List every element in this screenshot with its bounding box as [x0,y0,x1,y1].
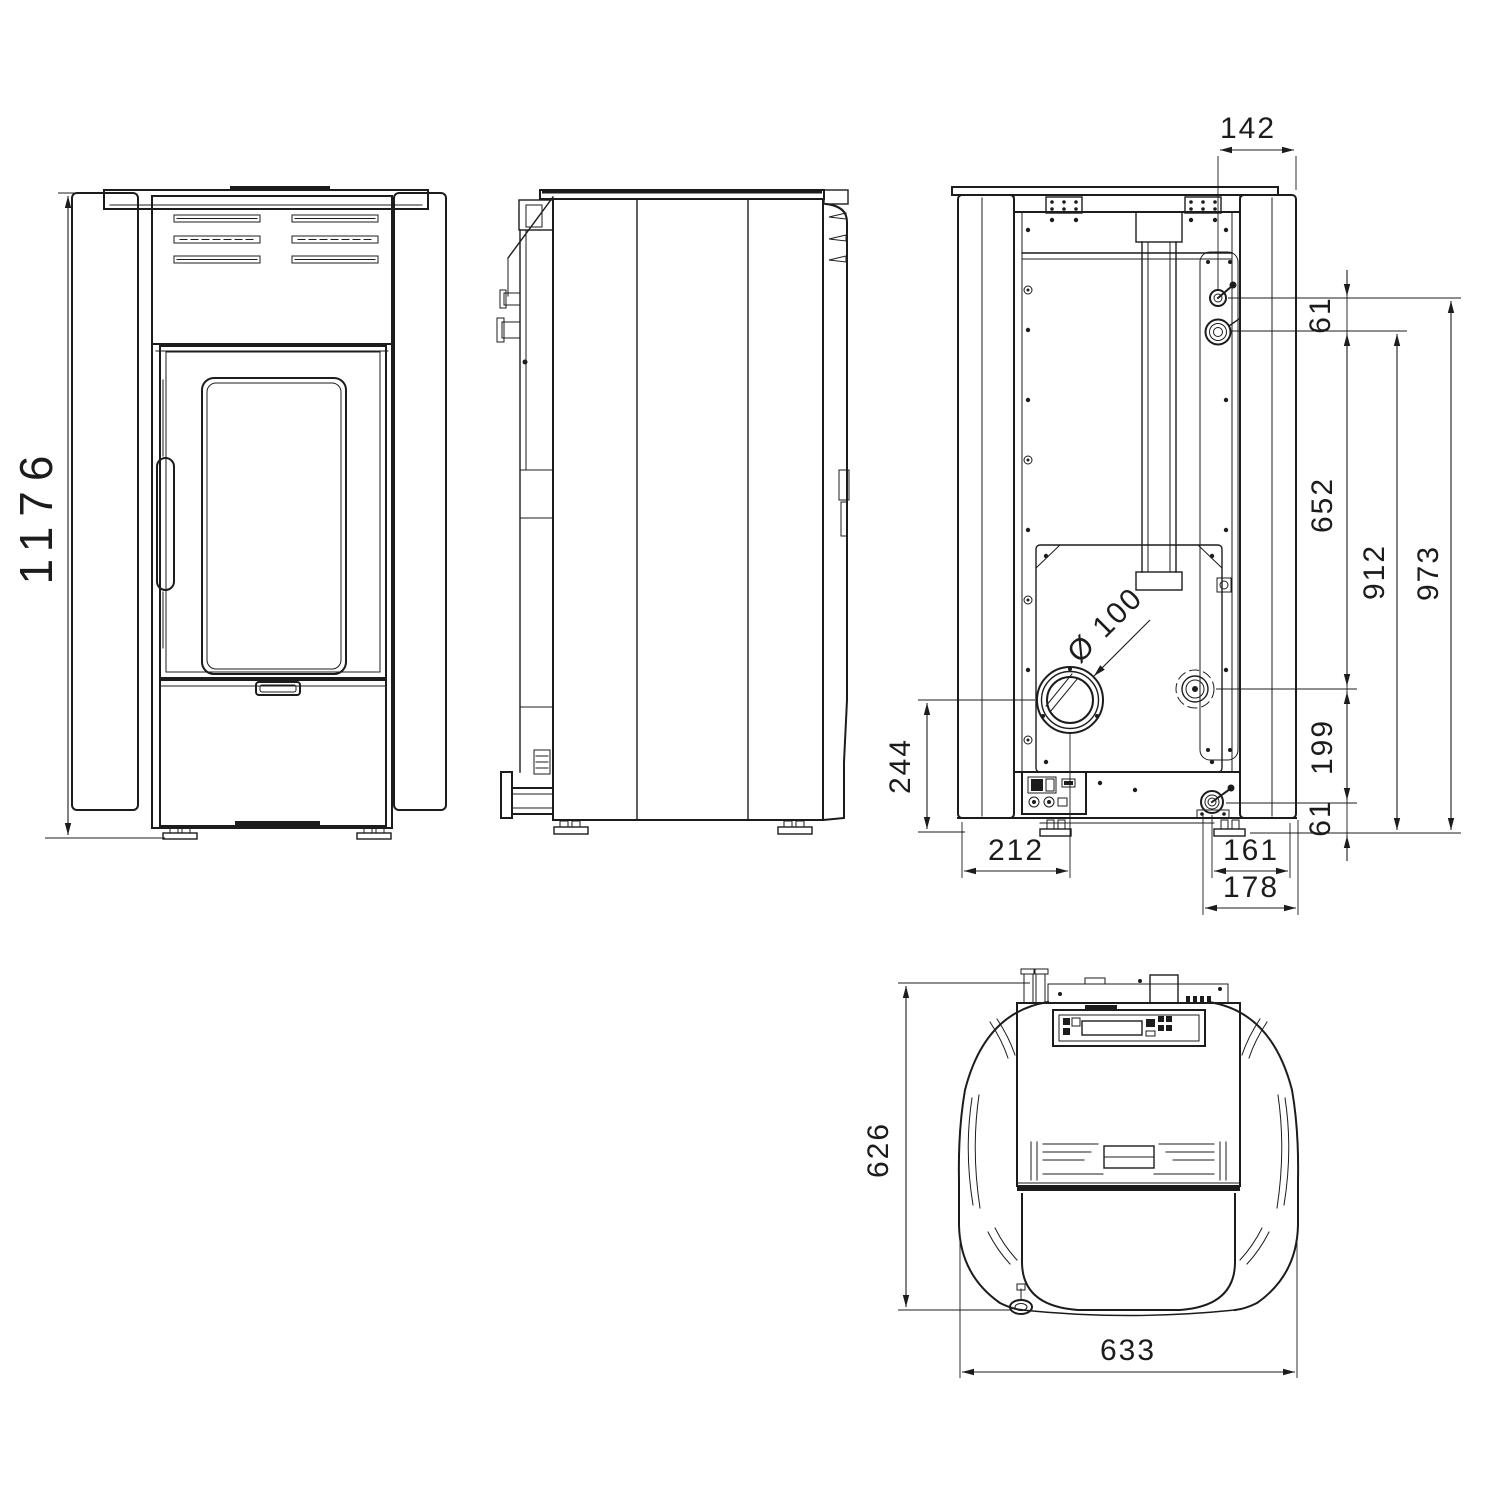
rear-screws [1024,228,1228,792]
dim-label-912: 912 [1358,544,1391,600]
drawing-page: 1176 [0,0,1500,1500]
rear-left-side-panel [958,195,1014,818]
top-left-curved-panel [959,1002,1048,1310]
rear-back-panel [1014,212,1240,772]
rear-bottom-valve [1197,785,1235,819]
rear-view: 142 61 652 199 61 912 973 [884,112,1461,915]
dim-label-244: 244 [884,738,917,794]
side-view [497,190,849,834]
side-flue-stub [512,788,553,814]
stove-technical-drawing: 1176 [0,0,1500,1500]
top-front-door [1022,1194,1235,1310]
side-rear-details [497,197,553,818]
side-flue-flange [501,772,512,818]
control-button [1166,1025,1172,1031]
dim-rear-912: 912 [1358,334,1397,830]
control-button [1146,1019,1155,1027]
dim-label-142: 142 [1220,112,1276,145]
side-feet [554,821,812,834]
front-body [152,196,392,828]
front-right-side-panel [394,193,446,810]
dim-label-178: 178 [1223,871,1279,904]
dim-rear-chain: 61 652 199 61 [1304,270,1347,861]
dim-flue-diameter: Ø 100 [1061,581,1150,676]
side-body [553,199,823,820]
rear-feet [1040,820,1245,836]
dim-label-212: 212 [988,834,1044,867]
control-button [1166,1016,1172,1022]
dim-label-652: 652 [1306,477,1339,533]
front-fire-door [157,346,386,678]
dim-front-height: 1176 [10,193,165,838]
dim-rear-161: 161 [1212,815,1290,878]
side-front-panel [823,190,849,820]
control-button [1063,1018,1070,1025]
rear-flue-outlet [1037,667,1103,733]
top-right-curved-panel [1209,1002,1298,1310]
dim-label-199: 199 [1306,719,1339,775]
dim-label-973: 973 [1412,545,1445,601]
control-button [1158,1025,1164,1031]
top-body [1017,1003,1240,1186]
control-panel [1053,1005,1205,1046]
front-left-side-panel [72,193,138,810]
dim-label-61-upper: 61 [1304,296,1337,333]
control-button [1072,1018,1080,1026]
dim-label-161: 161 [1223,834,1279,867]
control-button [1063,1028,1070,1035]
rear-right-side-panel [1240,195,1296,818]
door-glass [202,378,346,674]
dim-label-626: 626 [862,1122,895,1178]
rear-flue-channel [1136,212,1182,590]
dim-rear-212: 212 [962,733,1070,878]
dim-label-633: 633 [1100,1334,1156,1367]
rear-power-panel [1022,772,1086,814]
control-button [1158,1016,1164,1022]
rear-top-cap [952,187,1278,195]
front-vent-grille [174,215,378,263]
top-rear-brackets [1021,969,1228,1003]
dim-label-front-height: 1176 [10,446,62,585]
front-view: 1176 [10,186,446,839]
dim-label-flue-diameter: Ø 100 [1061,581,1149,669]
dim-label-61-lower: 61 [1304,799,1337,836]
dim-rear-flue-height: 244 [884,700,1035,832]
side-bolt-lower [502,322,520,338]
rear-shield-plate [1036,545,1222,772]
rear-upper-fitting [1206,319,1240,345]
control-display [1082,1021,1142,1035]
rear-hinges [1046,197,1221,222]
drawer-handle [256,682,300,695]
top-vent-grille [1031,1142,1226,1180]
rear-upper-valve [1210,282,1237,307]
rear-air-inlet [1176,670,1214,708]
top-view: 626 633 [862,969,1298,1378]
front-bottom-drawer [160,680,386,826]
front-top-tab [230,186,330,191]
dim-rear-973: 973 [1412,301,1451,830]
